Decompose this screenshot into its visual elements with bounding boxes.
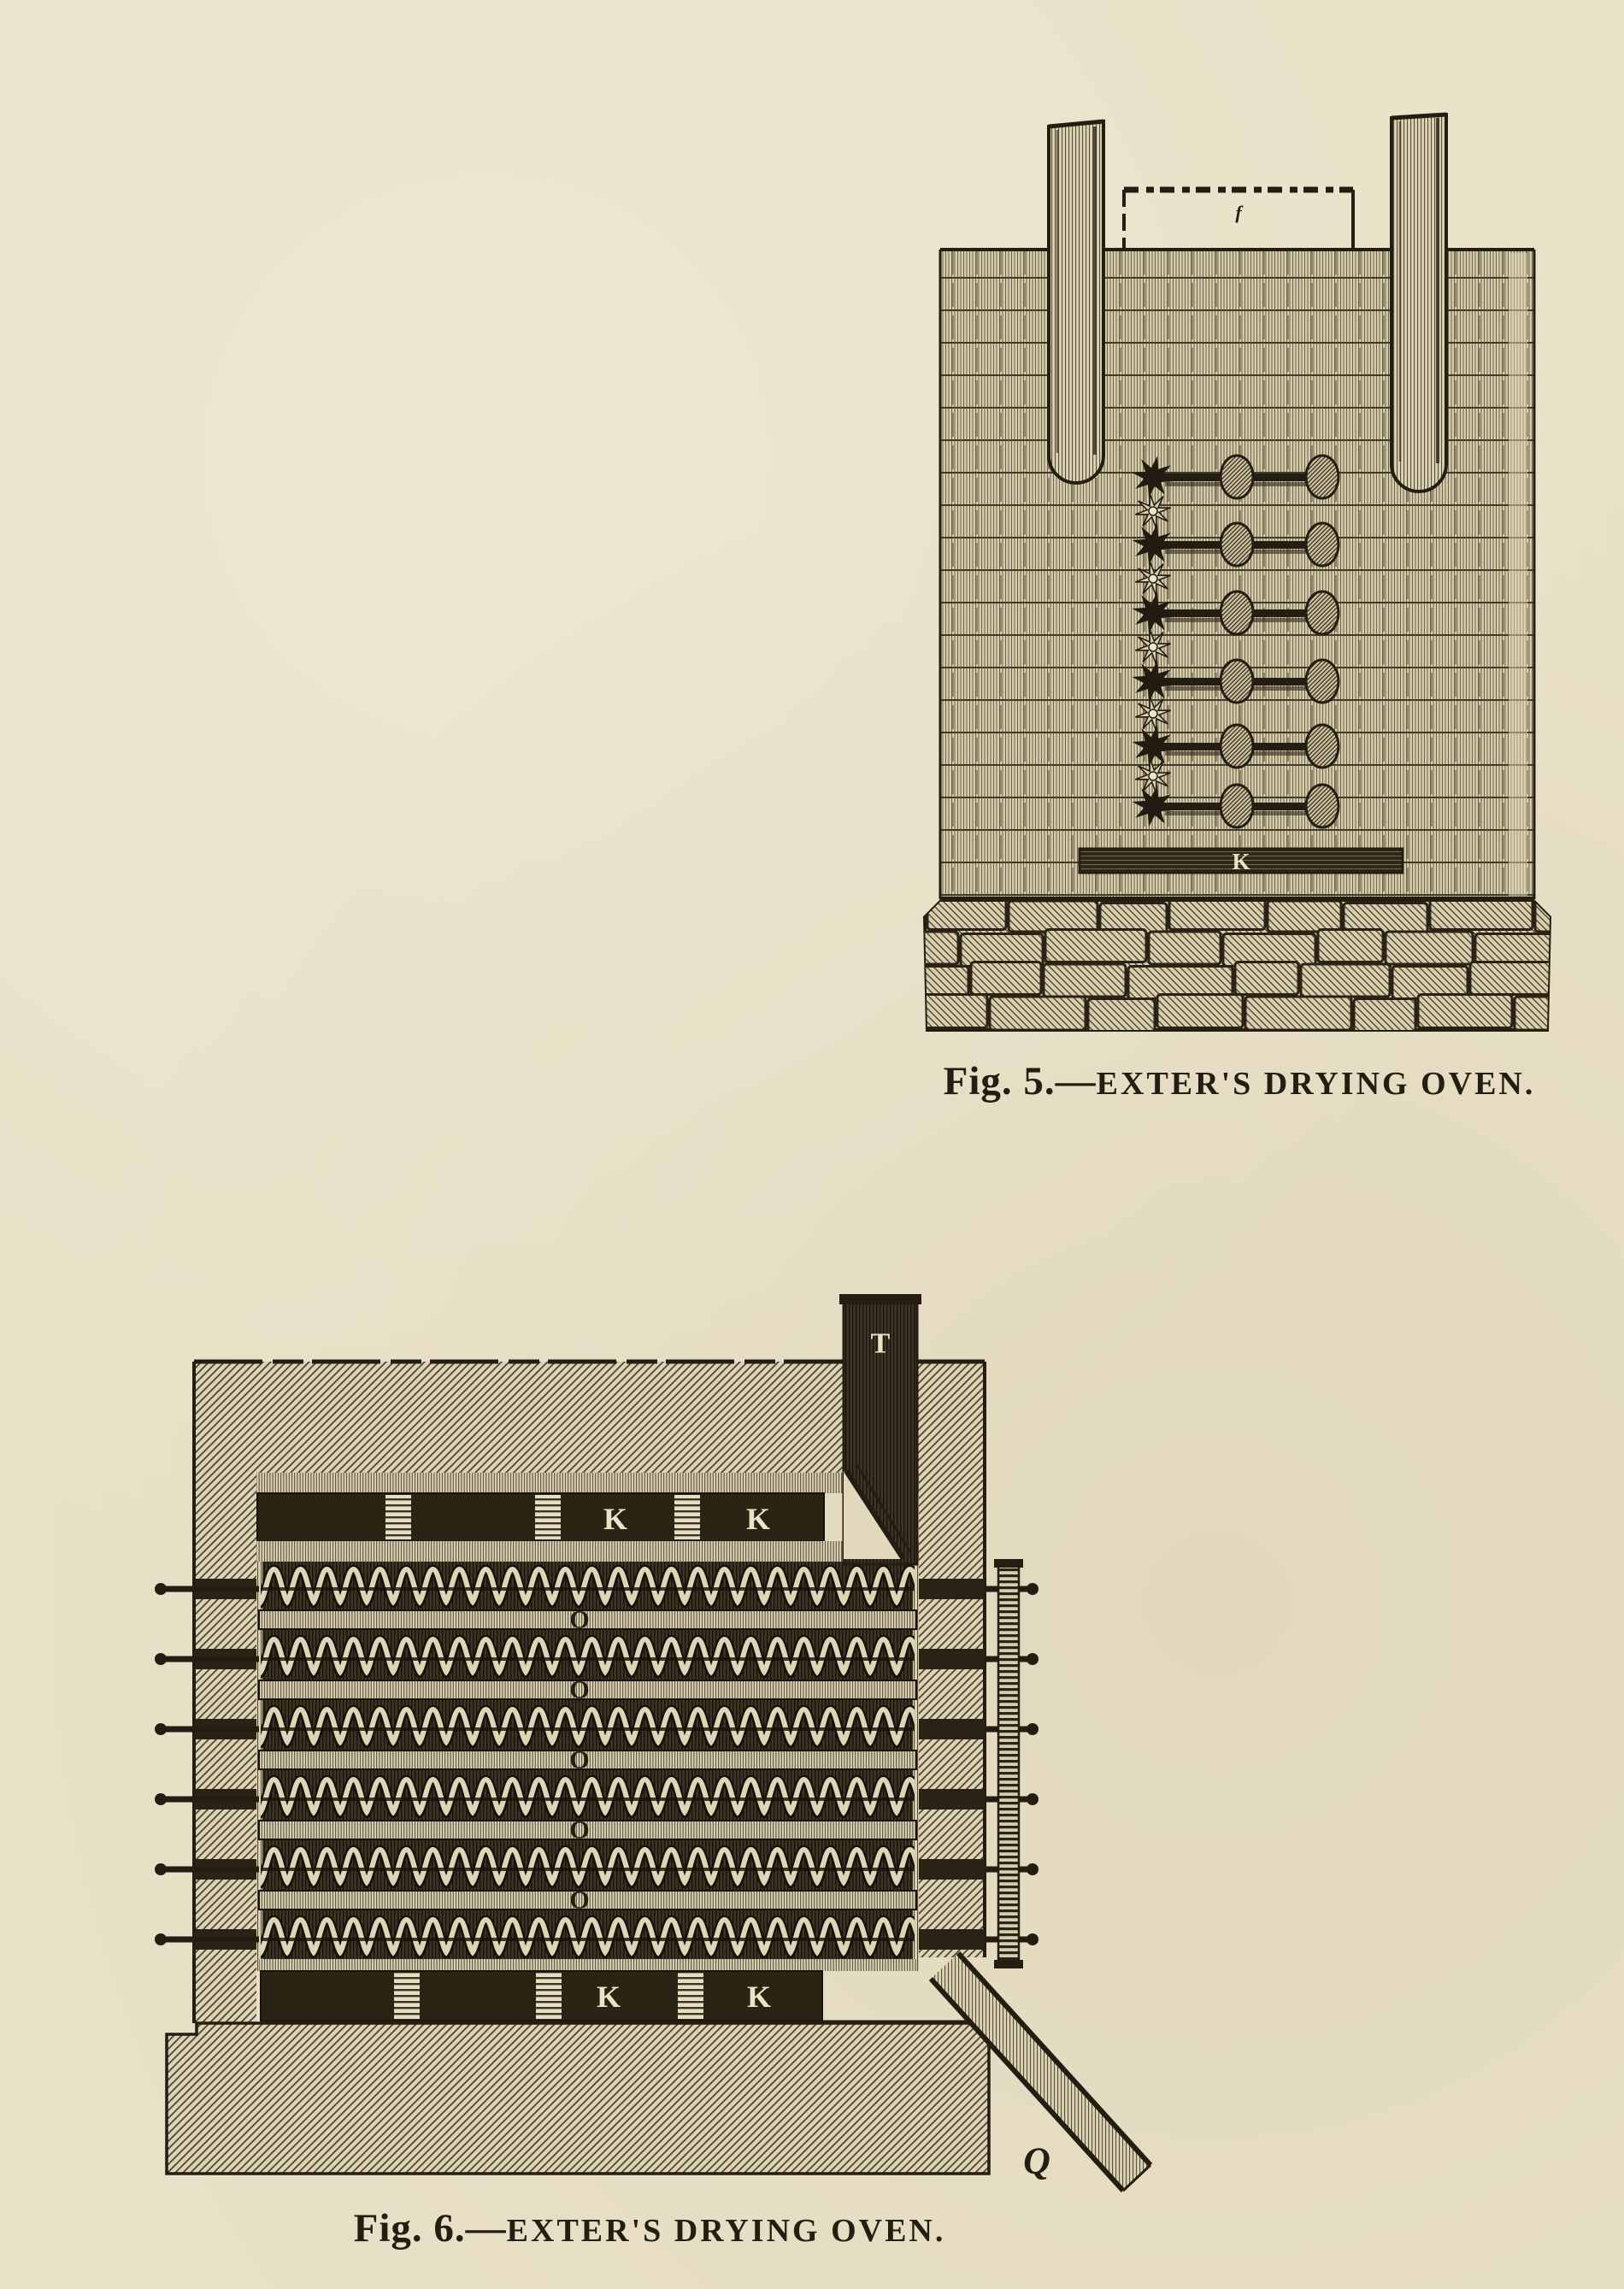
fig6-right-bearing-band: [919, 1719, 985, 1739]
fig6-screw-row: [261, 1565, 915, 1608]
fig5-foundation-stone: [1088, 999, 1155, 1033]
fig6-top-vent-2: [535, 1495, 561, 1539]
fig5-damper-mark: f: [1235, 202, 1244, 223]
fig6-left-shaft-stub: [158, 1867, 259, 1873]
fig6-left-shaft-knob: [155, 1653, 167, 1665]
fig6-right-shaft-knob: [1027, 1933, 1039, 1945]
fig6-chute-label: Q: [1023, 2140, 1050, 2182]
figure6-engraving: K K OOOOO K K T: [155, 1294, 1150, 2191]
fig5-idler-hub: [1149, 709, 1157, 718]
fig5-foundation-stone: [1157, 995, 1243, 1028]
fig5-foundation-stone: [1535, 901, 1586, 932]
fig6-rack-top-cap: [994, 1559, 1023, 1568]
fig5-foundation-stone: [914, 995, 987, 1028]
fig6-right-shaft-knob: [1027, 1723, 1039, 1735]
fig6-bottom-vent-3: [678, 1973, 703, 2019]
figure5-engraving: f K: [874, 115, 1586, 1033]
fig6-top-strip-2: [256, 1541, 919, 1562]
fig5-foundation-stone: [1515, 997, 1574, 1030]
fig5-foundation-stone: [898, 932, 958, 964]
fig5-idler-hub: [1149, 507, 1157, 515]
fig5-foundation-stone: [927, 899, 1006, 930]
fig5-grate-bar: K: [1080, 849, 1403, 874]
fig6-right-bearing-band: [919, 1859, 985, 1880]
fig5-foundation-stone: [1245, 997, 1351, 1030]
fig6-tray-opening-label: O: [569, 1746, 589, 1774]
fig5-foundation-stone: [1009, 901, 1097, 932]
fig5-roller-journal: [1306, 725, 1339, 768]
figure6-caption: Fig. 6.—EXTER'S DRYING OVEN.: [291, 2205, 1009, 2251]
fig6-right-bearing-band: [919, 1649, 985, 1669]
fig5-foundation-stone: [1354, 999, 1415, 1033]
fig5-roller-journal: [1221, 523, 1253, 566]
fig6-right-shaft-knob: [1027, 1793, 1039, 1805]
fig5-foundation-stone: [1169, 899, 1265, 930]
fig6-chimney: T: [839, 1294, 921, 1564]
fig5-foundation-stone: [1044, 964, 1126, 997]
fig6-tray-opening-label: O: [569, 1676, 589, 1704]
fig5-roller-journal: [1306, 456, 1339, 498]
fig6-right-shaft-knob: [1027, 1583, 1039, 1595]
fig6-left-shaft-stub: [158, 1586, 259, 1592]
fig5-foundation-stone: [1045, 930, 1146, 962]
fig5-foundation-stone: [990, 997, 1086, 1030]
fig6-bottom-vent-2: [536, 1973, 562, 2019]
fig5-foundation-stone: [1418, 995, 1512, 1028]
fig6-tray-opening-label: O: [569, 1886, 589, 1915]
fig6-screw-row: [261, 1845, 915, 1888]
book-page: f K: [0, 0, 1624, 2289]
fig5-right-tube: [1392, 115, 1446, 491]
engravings-canvas: f K: [0, 0, 1624, 2289]
figure6-caption-number: Fig. 6.—: [354, 2206, 507, 2251]
fig6-left-shaft-knob: [155, 1723, 167, 1735]
fig5-damper-box: f: [1124, 190, 1353, 250]
fig6-chimney-label: T: [871, 1328, 891, 1360]
fig6-bottom-flue-label-2: K: [747, 1980, 771, 2014]
fig6-foundation: [167, 2023, 989, 2174]
fig6-left-shaft-stub: [158, 1797, 259, 1803]
fig5-roller-journal: [1221, 456, 1253, 498]
fig6-top-strip-1: [256, 1473, 919, 1493]
fig5-foundation: [874, 899, 1586, 1033]
fig5-grate-bar-label: K: [1232, 849, 1250, 874]
fig6-left-shaft-stub: [158, 1937, 259, 1943]
fig6-top-flue-band: K K: [257, 1493, 824, 1541]
fig6-screw-row: [261, 1635, 915, 1678]
fig5-foundation-stone: [971, 962, 1041, 995]
figure6-caption-title: EXTER'S DRYING OVEN.: [507, 2213, 946, 2249]
fig5-foundation-stone: [1301, 964, 1390, 997]
fig5-foundation-stone: [1268, 901, 1341, 932]
fig6-bottom-vent-1: [394, 1973, 420, 2019]
fig6-top-vent-1: [385, 1495, 411, 1539]
fig5-wall-light-edge: [1509, 253, 1527, 896]
fig6-left-shaft-knob: [155, 1863, 167, 1875]
fig6-chimney-cap: [839, 1294, 921, 1304]
fig6-left-shaft-stub: [158, 1656, 259, 1662]
fig5-foundation-stone: [1318, 930, 1383, 962]
fig5-roller-journal: [1221, 785, 1253, 827]
fig5-foundation-stone: [1149, 932, 1221, 964]
fig6-right-shaft-knob: [1027, 1863, 1039, 1875]
fig5-roller-journal: [1306, 523, 1339, 566]
fig5-foundation-stone: [1235, 962, 1298, 995]
fig5-roller-journal: [1306, 591, 1339, 634]
fig6-right-bearing-band: [919, 1579, 985, 1599]
fig6-bottom-flue-label-1: K: [597, 1980, 621, 2014]
fig6-rack-bottom-cap: [994, 1960, 1023, 1968]
fig6-left-shaft-knob: [155, 1933, 167, 1945]
fig6-screw-row: [261, 1775, 915, 1818]
fig6-tray-opening-label: O: [569, 1816, 589, 1845]
figure5-caption-number: Fig. 5.—: [944, 1059, 1097, 1103]
figure5-caption-title: EXTER'S DRYING OVEN.: [1097, 1066, 1536, 1102]
fig5-left-tube: [1049, 121, 1103, 483]
fig5-foundation-stone: [1430, 899, 1533, 930]
fig6-right-bearing-band: [919, 1929, 985, 1950]
fig6-bottom-strip: [259, 1959, 916, 1971]
fig6-screw-row: [261, 1705, 915, 1748]
fig5-idler-hub: [1149, 574, 1157, 583]
fig6-bottom-flue-band: K K: [261, 1971, 822, 2021]
fig6-top-vent-3: [674, 1495, 700, 1539]
fig5-roller-journal: [1221, 591, 1253, 634]
fig5-roller-journal: [1306, 660, 1339, 703]
fig5-roller-journal: [1221, 660, 1253, 703]
fig5-roller-journal: [1221, 725, 1253, 768]
fig6-right-bearing-band: [919, 1789, 985, 1809]
fig6-screw-row: [261, 1915, 915, 1958]
fig5-foundation-stones: [874, 899, 1586, 1033]
fig6-masonry-right: [919, 1473, 985, 1957]
fig6-right-shaft-knob: [1027, 1653, 1039, 1665]
fig6-drive-rack: [994, 1559, 1023, 1968]
fig6-top-flue-label-2: K: [746, 1502, 770, 1536]
fig6-left-shaft-knob: [155, 1583, 167, 1595]
figure5-caption: Fig. 5.—EXTER'S DRYING OVEN.: [880, 1058, 1598, 1104]
fig6-tray-opening-label: O: [569, 1606, 589, 1634]
fig5-idler-hub: [1149, 772, 1157, 780]
fig5-roller-journal: [1306, 785, 1339, 827]
fig6-left-shaft-knob: [155, 1793, 167, 1805]
fig6-left-shaft-stub: [158, 1727, 259, 1733]
fig5-foundation-stone: [1386, 932, 1473, 964]
fig5-idler-hub: [1149, 643, 1157, 651]
fig6-screw-conveyors: OOOOO: [259, 1565, 916, 1958]
fig6-top-flue-label-1: K: [603, 1502, 627, 1536]
fig5-foundation-stone: [1470, 962, 1552, 995]
